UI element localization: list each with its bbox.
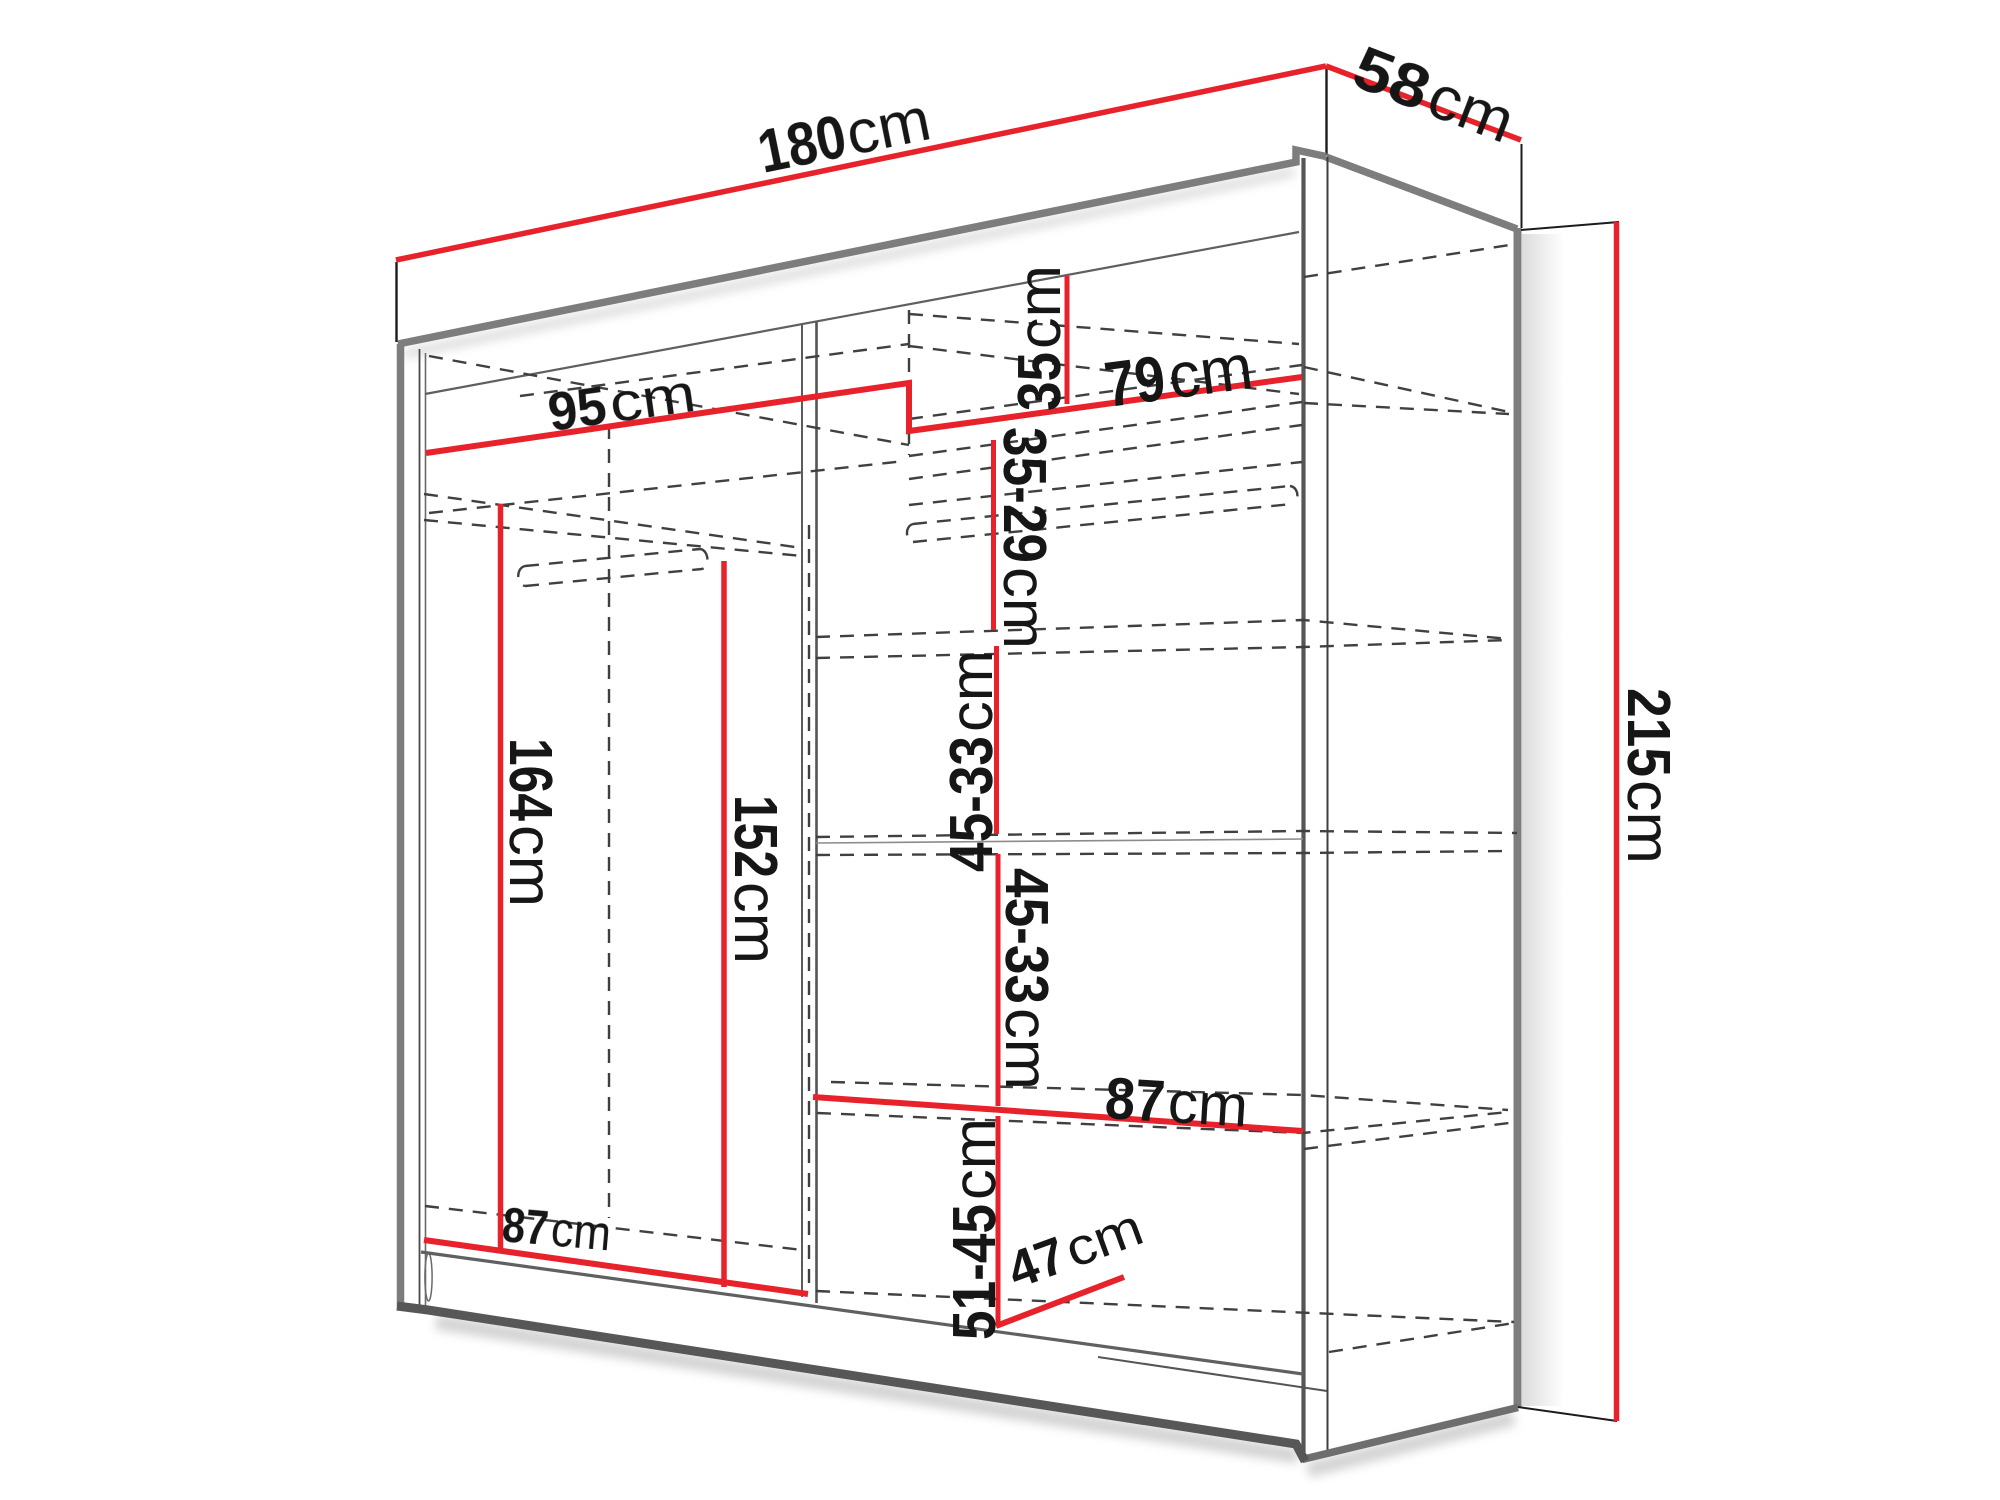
- svg-text:180: 180: [752, 102, 852, 186]
- svg-text:cm: cm: [1615, 780, 1683, 864]
- svg-text:35-29: 35-29: [991, 427, 1059, 563]
- svg-text:164: 164: [497, 738, 565, 821]
- svg-text:cm: cm: [991, 567, 1059, 649]
- svg-text:cm: cm: [1005, 265, 1073, 349]
- svg-text:cm: cm: [937, 650, 1005, 732]
- svg-text:35: 35: [1005, 352, 1073, 411]
- svg-text:cm: cm: [606, 363, 700, 434]
- svg-text:87: 87: [500, 1198, 551, 1256]
- svg-text:87: 87: [1103, 1065, 1167, 1135]
- svg-text:cm: cm: [549, 1202, 613, 1261]
- svg-text:45-33: 45-33: [993, 868, 1061, 1004]
- svg-text:cm: cm: [993, 1008, 1061, 1090]
- svg-text:cm: cm: [722, 882, 790, 964]
- svg-text:cm: cm: [1058, 1198, 1151, 1279]
- svg-text:95: 95: [544, 375, 610, 442]
- svg-text:cm: cm: [840, 84, 936, 167]
- svg-text:cm: cm: [1419, 61, 1524, 155]
- svg-text:cm: cm: [1166, 1069, 1250, 1140]
- svg-text:51-45: 51-45: [940, 1204, 1008, 1340]
- svg-text:215: 215: [1615, 688, 1683, 777]
- svg-text:79: 79: [1100, 342, 1169, 421]
- svg-text:152: 152: [722, 795, 790, 878]
- svg-text:cm: cm: [497, 825, 565, 907]
- svg-text:cm: cm: [1164, 330, 1257, 412]
- svg-text:cm: cm: [940, 1118, 1008, 1200]
- svg-text:45-33: 45-33: [937, 736, 1005, 872]
